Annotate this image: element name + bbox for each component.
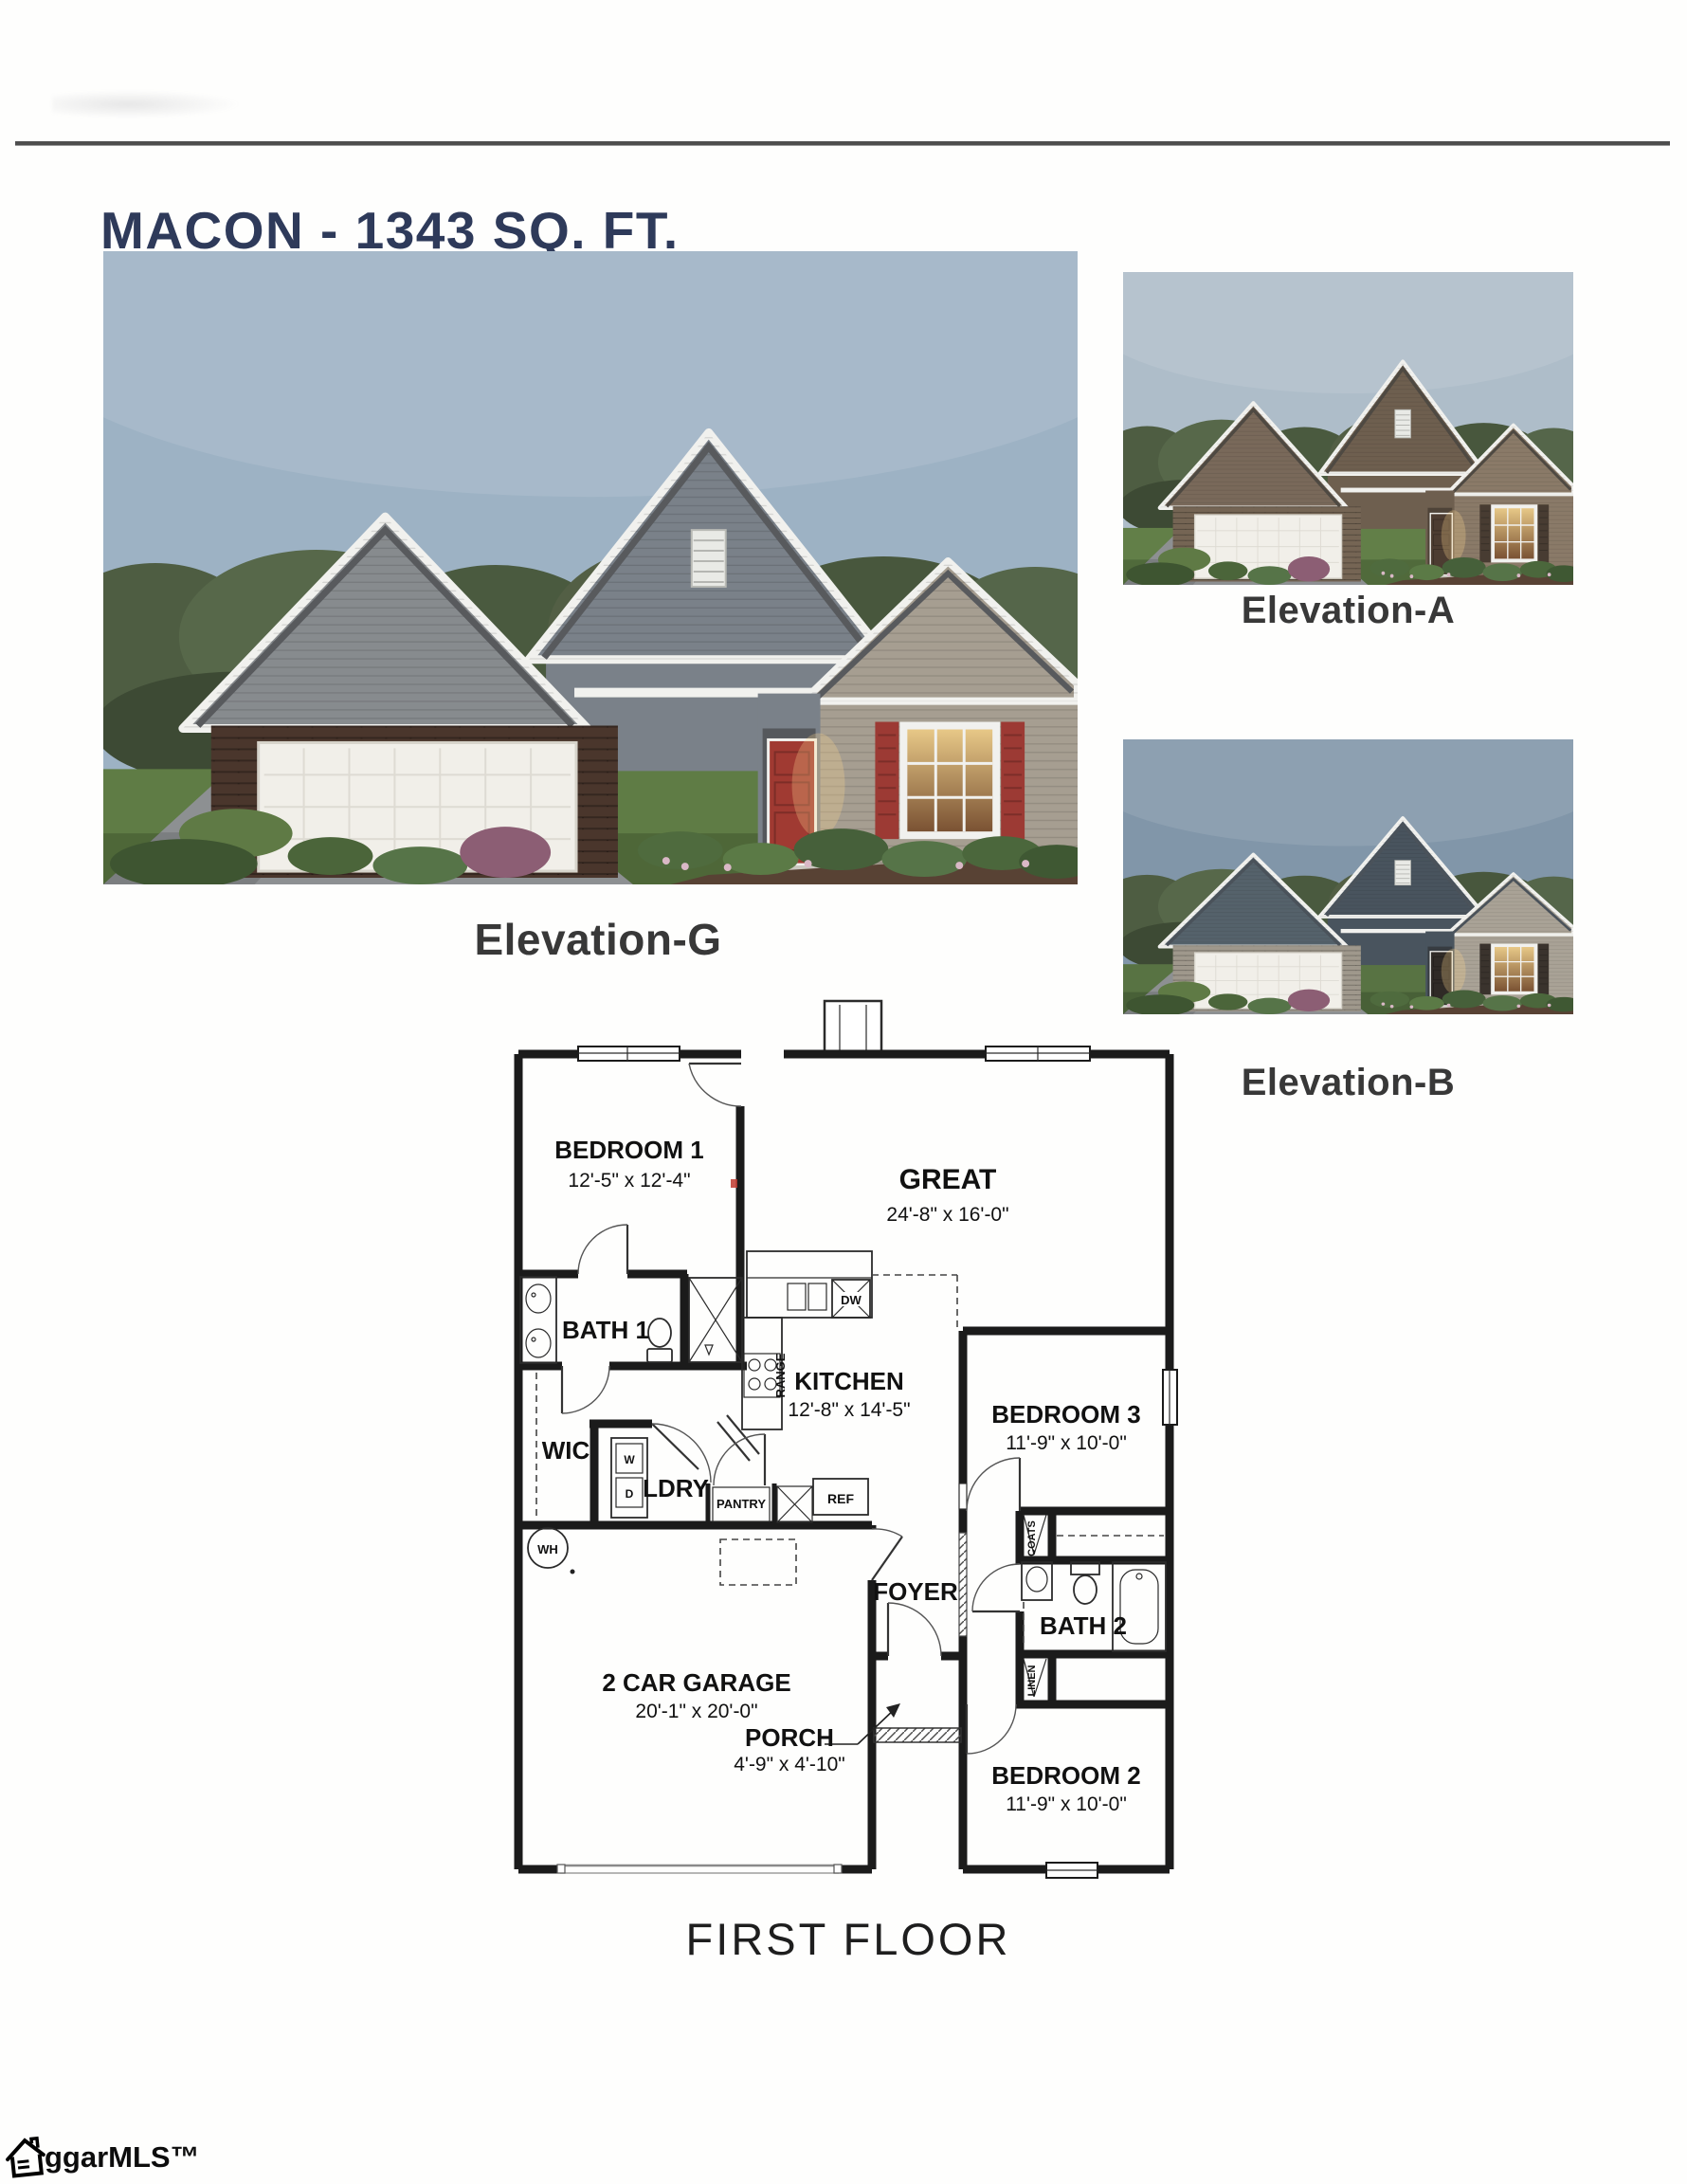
- bedroom2-dims: 11'-9" x 10'-0": [1006, 1793, 1127, 1815]
- garage-dims: 20'-1" x 20'-0": [635, 1701, 757, 1722]
- elevation-a-photo: [1123, 272, 1573, 585]
- bath1-label: BATH 1: [562, 1316, 649, 1344]
- elevation-g-label: Elevation-G: [352, 914, 844, 965]
- floor-plan: BEDROOM 1 12'-5" x 12'-4" GREAT 24'-8" x…: [474, 986, 1194, 1943]
- elevation-b-photo: [1123, 739, 1573, 1014]
- garage-door-opening: [557, 1865, 842, 1873]
- elevation-a-label: Elevation-A: [1123, 590, 1573, 632]
- wh-label: WH: [537, 1542, 558, 1556]
- house-logo-icon: [0, 2130, 54, 2184]
- scan-artifact: [52, 90, 242, 118]
- bedroom2-label: BEDROOM 2: [991, 1761, 1140, 1790]
- half-wall: [959, 1533, 967, 1636]
- kitchen-dims: 12'-8" x 14'-5": [788, 1399, 910, 1421]
- coats-label: COATS: [1026, 1520, 1038, 1556]
- divider-line: [15, 141, 1670, 146]
- linen-label: LINEN: [1026, 1665, 1038, 1696]
- elevation-g-photo: [103, 251, 1078, 884]
- washer-label: W: [624, 1453, 635, 1466]
- dryer-label: D: [626, 1487, 634, 1501]
- bedroom3-label: BEDROOM 3: [991, 1400, 1140, 1429]
- bath2-label: BATH 2: [1040, 1611, 1127, 1640]
- porch-step: [874, 1728, 961, 1742]
- garage-label: 2 CAR GARAGE: [602, 1668, 790, 1697]
- range-label: RANGE: [773, 1353, 788, 1397]
- flyer-page: MACON - 1343 SQ. FT. Elevation-G Elevati…: [0, 0, 1687, 2184]
- porch-label: PORCH: [745, 1723, 834, 1752]
- bedroom3-dims: 11'-9" x 10'-0": [1006, 1432, 1127, 1454]
- mls-watermark-text: ggarMLS™: [45, 2140, 200, 2175]
- great-dims: 24'-8" x 16'-0": [886, 1204, 1008, 1226]
- ldry-label: LDRY: [643, 1474, 709, 1502]
- dw-label: DW: [841, 1293, 862, 1307]
- red-artifact: [731, 1179, 737, 1188]
- wic-label: WIC: [542, 1436, 590, 1465]
- chimney: [825, 1001, 881, 1056]
- bedroom1-dims: 12'-5" x 12'-4": [568, 1170, 690, 1192]
- foyer-label: FOYER: [873, 1577, 958, 1606]
- porch-dims: 4'-9" x 4'-10": [734, 1754, 844, 1775]
- mls-watermark: ggarMLS™: [2, 2133, 200, 2182]
- first-floor-label: FIRST FLOOR: [507, 1913, 1189, 1965]
- bedroom1-label: BEDROOM 1: [554, 1136, 703, 1164]
- kitchen-label: KITCHEN: [794, 1367, 904, 1395]
- pantry-label: PANTRY: [717, 1497, 766, 1511]
- great-label: GREAT: [899, 1164, 997, 1195]
- broom-closet: [777, 1486, 812, 1522]
- ref-label: REF: [827, 1491, 854, 1506]
- attic-access: [720, 1539, 796, 1585]
